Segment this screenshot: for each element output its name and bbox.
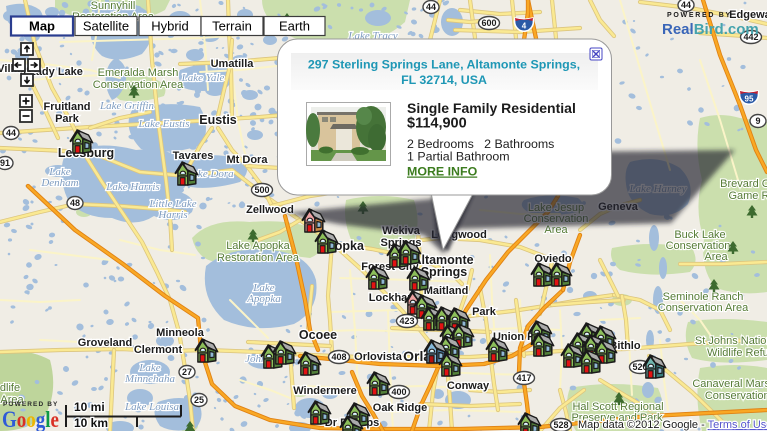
svg-text:44: 44 bbox=[426, 2, 436, 12]
svg-text:Emeralda Marsh: Emeralda Marsh bbox=[98, 67, 179, 79]
svg-text:Wildlife Refuge: Wildlife Refuge bbox=[707, 347, 767, 359]
svg-text:Area: Area bbox=[704, 251, 728, 263]
svg-text:POWERED BY: POWERED BY bbox=[667, 12, 732, 19]
svg-text:Conservation Ar: Conservation Ar bbox=[705, 390, 767, 402]
svg-text:Hybrid: Hybrid bbox=[151, 19, 189, 34]
svg-text:Restoration Area: Restoration Area bbox=[217, 252, 300, 264]
svg-text:Minneola: Minneola bbox=[156, 327, 205, 339]
svg-text:Mt Dora: Mt Dora bbox=[227, 154, 269, 166]
svg-text:Brevard Co: Brevard Co bbox=[720, 178, 767, 190]
svg-text:Zellwood: Zellwood bbox=[246, 204, 294, 216]
svg-text:600: 600 bbox=[481, 18, 496, 28]
svg-text:Lake Louisa: Lake Louisa bbox=[124, 401, 180, 413]
svg-text:Single Family Residential: Single Family Residential bbox=[407, 100, 576, 116]
svg-text:Google: Google bbox=[2, 407, 59, 431]
svg-text:528: 528 bbox=[553, 420, 568, 430]
svg-text:44: 44 bbox=[681, 0, 691, 10]
svg-text:417: 417 bbox=[516, 373, 531, 383]
svg-text:Map: Map bbox=[29, 19, 55, 34]
svg-text:Eustis: Eustis bbox=[199, 113, 237, 127]
svg-text:FL 32714, USA: FL 32714, USA bbox=[401, 73, 487, 87]
svg-text:Oak Ridge: Oak Ridge bbox=[373, 402, 427, 414]
svg-text:9: 9 bbox=[755, 116, 760, 126]
svg-text:Lake Eustis: Lake Eustis bbox=[137, 118, 189, 130]
svg-text:Map data ©2012 Google - Terms: Map data ©2012 Google - Terms of Use bbox=[578, 419, 767, 431]
svg-text:Fruitland: Fruitland bbox=[43, 101, 90, 113]
svg-text:Denham: Denham bbox=[40, 177, 78, 189]
svg-text:Orlovista: Orlovista bbox=[354, 351, 403, 363]
svg-text:Clermont: Clermont bbox=[134, 344, 183, 356]
svg-text:MORE INFO: MORE INFO bbox=[407, 165, 478, 179]
svg-text:423: 423 bbox=[399, 316, 414, 326]
svg-text:Windermere: Windermere bbox=[293, 385, 356, 397]
svg-text:10 km: 10 km bbox=[74, 416, 108, 430]
svg-text:Conservation Area: Conservation Area bbox=[93, 79, 184, 91]
svg-text:297 Sterling Springs Lane, Alt: 297 Sterling Springs Lane, Altamonte Spr… bbox=[308, 58, 580, 72]
svg-text:Ocoee: Ocoee bbox=[299, 328, 337, 342]
svg-text:dlife: dlife bbox=[0, 382, 20, 394]
svg-text:48: 48 bbox=[70, 198, 80, 208]
svg-text:Park: Park bbox=[472, 306, 497, 318]
svg-text:Umatilla: Umatilla bbox=[211, 58, 255, 70]
svg-text:Game Re: Game Re bbox=[728, 190, 767, 202]
svg-text:500: 500 bbox=[254, 185, 269, 195]
svg-text:Apopka: Apopka bbox=[246, 293, 281, 305]
svg-text:Park: Park bbox=[55, 113, 80, 125]
svg-text:Lake Apopka: Lake Apopka bbox=[226, 240, 290, 252]
svg-text:RealBird.com: RealBird.com bbox=[662, 21, 759, 38]
svg-text:Conservation Area: Conservation Area bbox=[658, 302, 749, 314]
svg-text:408: 408 bbox=[331, 352, 346, 362]
svg-text:25: 25 bbox=[194, 395, 204, 405]
svg-text:400: 400 bbox=[391, 387, 406, 397]
svg-text:St Johns National: St Johns National bbox=[695, 335, 767, 347]
svg-text:Groveland: Groveland bbox=[78, 337, 132, 349]
svg-text:95: 95 bbox=[745, 95, 754, 104]
svg-text:10 mi: 10 mi bbox=[74, 400, 105, 414]
svg-text:Earth: Earth bbox=[279, 19, 310, 34]
svg-text:Edgewater: Edgewater bbox=[729, 9, 767, 21]
svg-text:Minnehaha: Minnehaha bbox=[124, 373, 176, 385]
svg-text:Canaveral Marshes: Canaveral Marshes bbox=[692, 378, 767, 390]
svg-text:Tavares: Tavares bbox=[173, 150, 214, 162]
svg-text:Lake Griffin: Lake Griffin bbox=[99, 100, 155, 112]
svg-text:Terrain: Terrain bbox=[212, 19, 252, 34]
svg-text:$114,900: $114,900 bbox=[407, 116, 467, 132]
svg-text:27: 27 bbox=[182, 367, 192, 377]
svg-text:Harris: Harris bbox=[157, 209, 187, 221]
svg-text:Lake Yale: Lake Yale bbox=[181, 72, 225, 84]
svg-text:Lake Harris: Lake Harris bbox=[105, 181, 159, 193]
svg-text:Maitland: Maitland bbox=[424, 285, 469, 297]
svg-text:44: 44 bbox=[6, 128, 16, 138]
svg-text:Satellite: Satellite bbox=[83, 19, 129, 34]
svg-text:91: 91 bbox=[0, 158, 10, 168]
svg-text:1 Partial Bathroom: 1 Partial Bathroom bbox=[407, 150, 510, 164]
svg-text:Conway: Conway bbox=[447, 380, 490, 392]
svg-text:4: 4 bbox=[522, 22, 527, 31]
